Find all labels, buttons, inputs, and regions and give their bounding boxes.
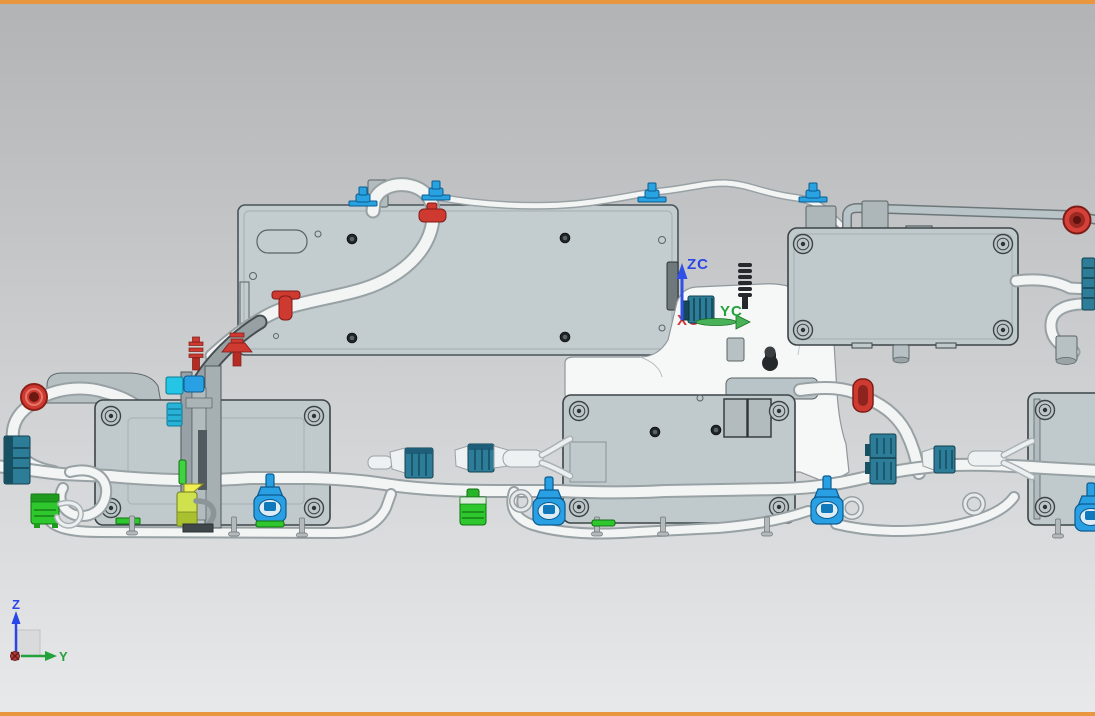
bracket-foot: [183, 524, 213, 532]
corner-boss-icon: [570, 498, 589, 517]
teal-connector-edge[interactable]: [1082, 258, 1095, 310]
blue-block[interactable]: [184, 376, 204, 392]
pipe-clamp-block[interactable]: [862, 201, 888, 231]
green-pad: [256, 521, 284, 527]
washer-icon: [711, 425, 721, 435]
washer-icon: [560, 332, 570, 342]
ecu-box-center[interactable]: [563, 395, 795, 523]
ecu-box-top-right[interactable]: [788, 226, 1018, 348]
red-grommet-left[interactable]: [21, 384, 47, 410]
green-connector[interactable]: [31, 494, 59, 528]
corner-boss-icon: [1036, 498, 1055, 517]
window-border-top: [0, 0, 1095, 4]
triad-plane: [17, 630, 40, 656]
corner-boss-icon: [305, 407, 324, 426]
teal-connector-stack-left[interactable]: [4, 436, 30, 484]
corner-boss-icon: [994, 321, 1013, 340]
red-grommet-right[interactable]: [1064, 207, 1091, 234]
box-cutout: [724, 399, 747, 437]
triad-z-label: Z: [12, 597, 20, 612]
washer-icon: [560, 233, 570, 243]
wire-boot: [922, 448, 934, 470]
washer-icon: [347, 234, 357, 244]
corner-boss-icon: [102, 407, 121, 426]
window-border-bottom: [0, 712, 1095, 716]
wire-boot: [390, 448, 405, 473]
wire-boot: [455, 446, 468, 470]
green-pad: [592, 520, 615, 526]
green-strip: [179, 460, 186, 484]
wire-boot: [368, 456, 392, 469]
box-cutout: [748, 399, 771, 437]
viewport-background[interactable]: [0, 0, 1095, 716]
corner-boss-icon: [794, 321, 813, 340]
washer-icon: [347, 333, 357, 343]
teal-connector[interactable]: [468, 444, 494, 472]
teal-connector-stack[interactable]: [865, 434, 896, 484]
cad-graphics-window[interactable]: XC YC ZC: [0, 0, 1095, 716]
teal-connector[interactable]: [934, 446, 955, 473]
triad-y-label: Y: [59, 649, 68, 664]
green-pad: [116, 518, 140, 524]
corner-boss-icon: [770, 402, 789, 421]
teal-connector[interactable]: [405, 448, 433, 478]
inline-capsule[interactable]: [503, 450, 543, 467]
corner-boss-icon: [794, 235, 813, 254]
cyan-clip[interactable]: [166, 377, 183, 394]
cyan-connector[interactable]: [167, 403, 182, 426]
mount-cylinder[interactable]: [1056, 336, 1077, 365]
spacer-cylinder: [727, 338, 744, 361]
mounting-panel[interactable]: [238, 205, 678, 355]
corner-boss-icon: [305, 499, 324, 518]
mount-cylinder[interactable]: [893, 345, 909, 363]
inline-capsule[interactable]: [968, 451, 1006, 466]
wcs-z-label: ZC: [687, 256, 709, 273]
red-ring-clamp[interactable]: [853, 379, 873, 412]
corner-boss-icon: [1036, 401, 1055, 420]
washer-icon: [650, 427, 660, 437]
corner-boss-icon: [994, 235, 1013, 254]
corner-boss-icon: [570, 402, 589, 421]
wcs-y-label: YC: [720, 303, 743, 320]
